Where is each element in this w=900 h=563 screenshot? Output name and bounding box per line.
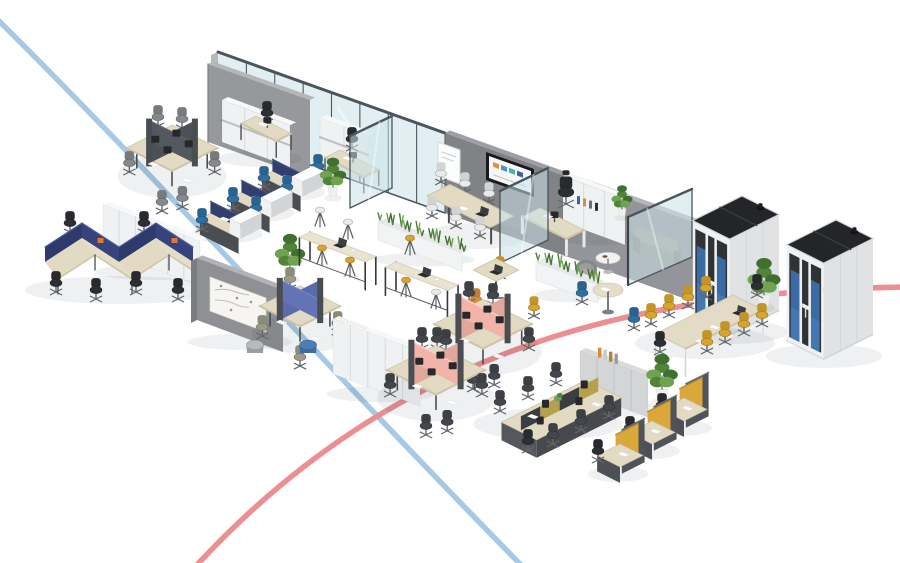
ottoman-gray bbox=[247, 340, 264, 353]
ottoman-blue bbox=[300, 340, 317, 353]
office-floorplan-scene bbox=[0, 0, 900, 563]
office-floorplan-illustration bbox=[0, 0, 900, 563]
